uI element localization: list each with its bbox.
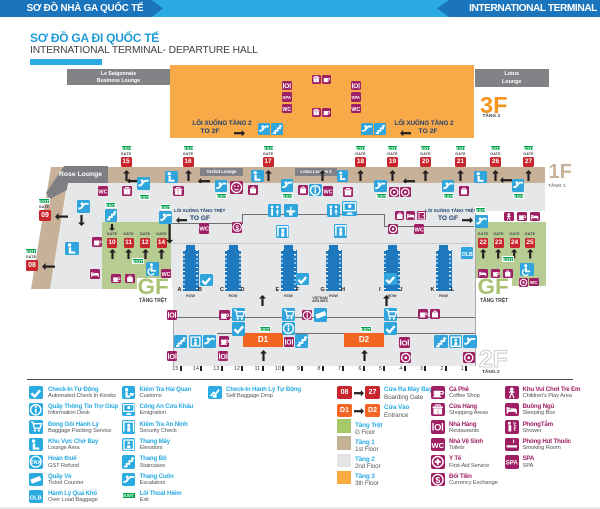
svg-text:WC: WC [323,189,332,195]
svg-text:WC: WC [414,227,424,233]
svg-text:WC: WC [351,106,360,112]
svg-text:WC: WC [530,280,538,286]
svg-text:WC: WC [161,271,170,277]
svg-text:SPA: SPA [351,95,360,100]
svg-text:$: $ [235,225,239,232]
svg-text:WC: WC [98,189,107,195]
svg-text:WC: WC [282,106,291,112]
svg-text:TAX: TAX [30,460,41,466]
svg-text:O: O [169,351,175,360]
svg-text:O: O [401,338,407,347]
svg-text:SPA: SPA [282,95,291,100]
svg-text:O: O [286,340,292,347]
svg-text:$: $ [435,474,440,484]
svg-text:O: O [284,83,289,90]
svg-text:WC: WC [199,227,209,233]
svg-text:OLB: OLB [30,496,42,502]
svg-text:O: O [220,351,226,360]
svg-text:O: O [434,423,441,434]
svg-text:SPA: SPA [506,460,519,467]
svg-text:O: O [169,312,175,319]
svg-text:WC: WC [431,441,444,450]
svg-text:O: O [353,83,358,90]
svg-text:OLB: OLB [461,252,472,258]
